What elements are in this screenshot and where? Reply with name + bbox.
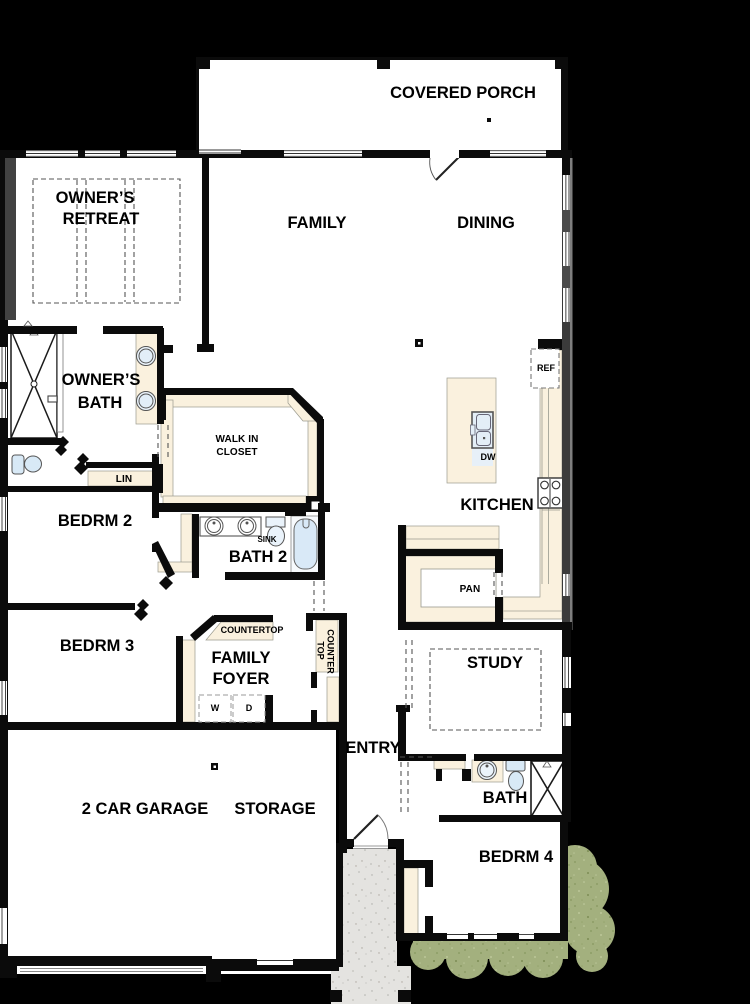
svg-text:STORAGE: STORAGE [234, 800, 315, 818]
svg-text:D: D [246, 703, 253, 713]
svg-text:CLOSET: CLOSET [216, 447, 257, 458]
svg-text:COUNTERTOP: COUNTERTOP [221, 625, 284, 635]
svg-text:W: W [211, 703, 220, 713]
svg-text:BEDRM 3: BEDRM 3 [60, 637, 134, 655]
svg-text:BEDRM 2: BEDRM 2 [58, 512, 132, 530]
svg-text:OWNER’S: OWNER’S [56, 189, 135, 207]
svg-text:RETREAT: RETREAT [63, 210, 140, 228]
svg-text:PAN: PAN [460, 584, 481, 595]
svg-text:COUNTER: COUNTER [326, 629, 336, 674]
svg-text:REF: REF [537, 363, 556, 373]
svg-text:FOYER: FOYER [213, 670, 270, 688]
svg-text:KITCHEN: KITCHEN [460, 496, 533, 514]
svg-text:BEDRM 4: BEDRM 4 [479, 848, 554, 866]
svg-text:OWNER’S: OWNER’S [62, 371, 141, 389]
svg-text:TOP: TOP [316, 641, 326, 659]
svg-text:BATH: BATH [78, 394, 123, 412]
svg-text:BATH: BATH [483, 789, 528, 807]
svg-text:FAMILY: FAMILY [212, 649, 271, 667]
svg-text:SINK: SINK [257, 535, 276, 544]
svg-text:2 CAR GARAGE: 2 CAR GARAGE [82, 800, 209, 818]
svg-text:LIN: LIN [116, 474, 132, 485]
svg-text:WALK IN: WALK IN [216, 434, 259, 445]
svg-text:DW: DW [481, 452, 496, 462]
svg-text:STUDY: STUDY [467, 654, 523, 672]
svg-text:ENTRY: ENTRY [345, 739, 400, 757]
svg-text:DINING: DINING [457, 214, 515, 232]
svg-text:COVERED PORCH: COVERED PORCH [390, 84, 536, 102]
svg-text:BATH 2: BATH 2 [229, 548, 287, 566]
svg-text:FAMILY: FAMILY [288, 214, 347, 232]
